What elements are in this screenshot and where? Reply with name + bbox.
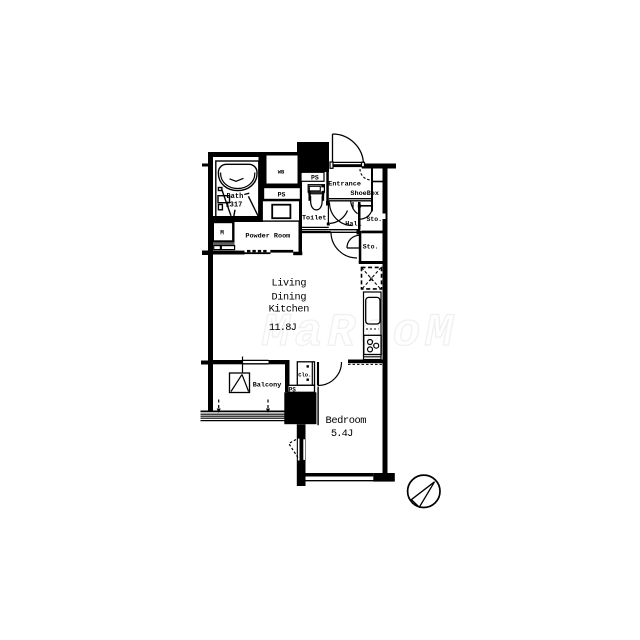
svg-text:Bath: Bath [226,193,243,201]
svg-text:Dining: Dining [272,291,307,303]
svg-text:ShoeBox: ShoeBox [350,190,379,198]
svg-text:1317: 1317 [225,202,242,210]
svg-text:Sto.: Sto. [363,244,379,251]
svg-text:M: M [220,229,224,236]
svg-text:Kitchen: Kitchen [269,304,310,316]
svg-text:5.4J: 5.4J [331,428,353,440]
svg-text:R: R [370,277,373,283]
svg-text:PS: PS [289,386,297,393]
svg-text:11.8J: 11.8J [269,322,296,334]
svg-text:Sto.: Sto. [366,216,382,223]
svg-text:Living: Living [272,278,307,290]
svg-text:PS: PS [278,192,286,199]
svg-text:Balcony: Balcony [253,381,282,389]
svg-text:WB: WB [278,169,285,176]
svg-text:PS: PS [311,175,319,182]
svg-text:Powder Room: Powder Room [245,233,290,241]
svg-text:Entrance: Entrance [328,180,361,188]
svg-text:Bedroom: Bedroom [326,415,367,427]
svg-text:Toilet: Toilet [302,215,326,223]
svg-text:Clo.: Clo. [298,371,311,378]
